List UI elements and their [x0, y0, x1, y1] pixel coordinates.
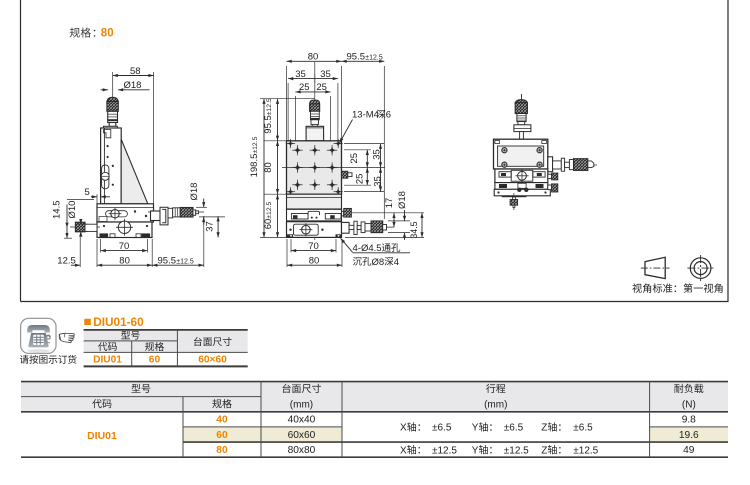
svg-text:Z: Z: [541, 423, 547, 434]
svg-text:4-Ø4.5: 4-Ø4.5: [353, 243, 382, 254]
svg-text:49: 49: [683, 445, 695, 456]
svg-text:14.5: 14.5: [51, 201, 62, 220]
svg-text:35: 35: [320, 69, 331, 80]
svg-text:25: 25: [316, 82, 327, 93]
svg-text:DIU01: DIU01: [93, 355, 122, 366]
svg-text:(N): (N): [682, 399, 696, 410]
svg-text:25: 25: [349, 153, 360, 164]
svg-text:25: 25: [299, 82, 310, 93]
svg-text:±12.5: ±12.5: [573, 445, 598, 456]
svg-text:80: 80: [263, 162, 274, 173]
svg-text:Z: Z: [541, 445, 547, 456]
svg-text:±12.5: ±12.5: [365, 55, 383, 62]
svg-text:X: X: [400, 423, 407, 434]
svg-text:60: 60: [149, 355, 161, 366]
svg-text:95.5: 95.5: [347, 52, 366, 63]
svg-text:Ø8: Ø8: [372, 257, 385, 268]
svg-text:19.6: 19.6: [679, 430, 699, 441]
svg-text:70: 70: [119, 241, 130, 252]
svg-text:40: 40: [216, 415, 228, 426]
svg-text:25: 25: [355, 174, 366, 185]
svg-text:(mm): (mm): [290, 399, 313, 410]
svg-text:37: 37: [204, 221, 215, 232]
svg-text:DIU01: DIU01: [87, 430, 117, 442]
svg-text:17: 17: [384, 198, 395, 209]
svg-text:±12.5: ±12.5: [266, 98, 273, 115]
svg-text:60: 60: [216, 430, 228, 441]
svg-text:12.5: 12.5: [57, 256, 76, 267]
svg-text:95.5: 95.5: [158, 256, 177, 267]
svg-text:4: 4: [394, 257, 399, 268]
svg-text:95.5: 95.5: [263, 115, 274, 134]
svg-text:80: 80: [119, 256, 130, 267]
svg-text:Y: Y: [472, 445, 479, 456]
svg-text:35: 35: [372, 176, 383, 187]
svg-text:80: 80: [101, 28, 114, 40]
svg-text:60: 60: [263, 219, 274, 230]
svg-text:80: 80: [309, 256, 320, 267]
svg-text:80: 80: [216, 445, 228, 456]
svg-text:58: 58: [130, 66, 141, 77]
svg-text:Y: Y: [472, 423, 479, 434]
svg-text:6: 6: [386, 110, 391, 121]
svg-text:60×60: 60×60: [198, 355, 227, 366]
svg-text:35: 35: [295, 69, 306, 80]
svg-text:198.5: 198.5: [249, 154, 260, 178]
svg-text:DIU01-60: DIU01-60: [93, 315, 144, 329]
svg-text:Ø10: Ø10: [67, 201, 78, 219]
svg-text:±12.5: ±12.5: [504, 445, 529, 456]
svg-text:±6.5: ±6.5: [573, 423, 593, 434]
svg-text:80x80: 80x80: [288, 445, 316, 456]
svg-text:60x60: 60x60: [288, 430, 316, 441]
svg-text:±12.5: ±12.5: [432, 445, 457, 456]
svg-text:Ø18: Ø18: [397, 191, 408, 209]
svg-text:Ø18: Ø18: [189, 183, 200, 201]
svg-text:±6.5: ±6.5: [432, 423, 452, 434]
svg-text:40x40: 40x40: [288, 415, 316, 426]
svg-text:35: 35: [372, 149, 383, 160]
svg-text:(mm): (mm): [484, 399, 507, 410]
svg-text:80: 80: [308, 52, 319, 63]
svg-text:±12.5: ±12.5: [266, 202, 273, 219]
svg-text:±12.5: ±12.5: [176, 259, 194, 266]
svg-text:5: 5: [85, 187, 90, 198]
svg-text:13-M4: 13-M4: [352, 110, 379, 121]
svg-text:X: X: [400, 445, 407, 456]
svg-text:9.8: 9.8: [682, 415, 696, 426]
svg-text:34.5: 34.5: [409, 221, 419, 238]
svg-text:±6.5: ±6.5: [504, 423, 524, 434]
svg-text:Ø18: Ø18: [124, 80, 142, 91]
svg-text:±12.5: ±12.5: [252, 136, 259, 153]
svg-text:70: 70: [308, 241, 319, 252]
